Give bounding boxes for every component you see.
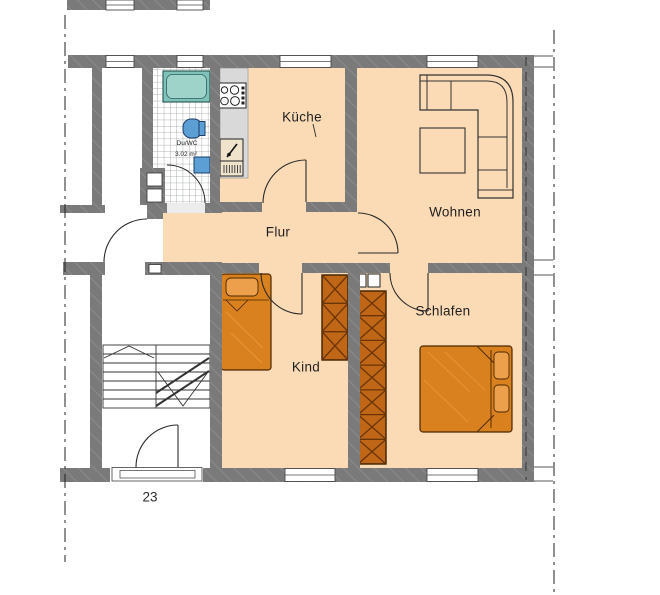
wash-basin-icon [194,157,210,173]
wardrobe-schlafen-icon [358,291,386,464]
kitchen-sink-icon [220,139,243,176]
bathtub-icon [163,71,210,102]
room-label-flur: Flur [266,225,290,240]
wardrobe-kind-icon [322,275,348,360]
adjacent-structure-lines [534,56,553,481]
building-entrance-threshold [110,468,203,483]
room-label-kind: Kind [292,360,320,375]
toilet-icon [183,119,205,138]
coffee-table-icon [420,128,465,173]
floor-plan-drawing [0,0,660,595]
floor-plan: Küche Wohnen Flur Kind Schlafen Du/WC 3.… [0,0,660,595]
bathroom-name-label: Du/WC [177,140,198,148]
staircase-icon [103,345,210,408]
bathroom-area-label: 3.02 m² [175,151,197,159]
stove-icon [218,83,246,108]
double-bed-icon [420,346,512,432]
room-label-wohnen: Wohnen [429,205,481,220]
house-number-label: 23 [142,490,157,505]
room-label-schlafen: Schlafen [416,304,471,319]
room-label-kueche: Küche [282,110,322,125]
